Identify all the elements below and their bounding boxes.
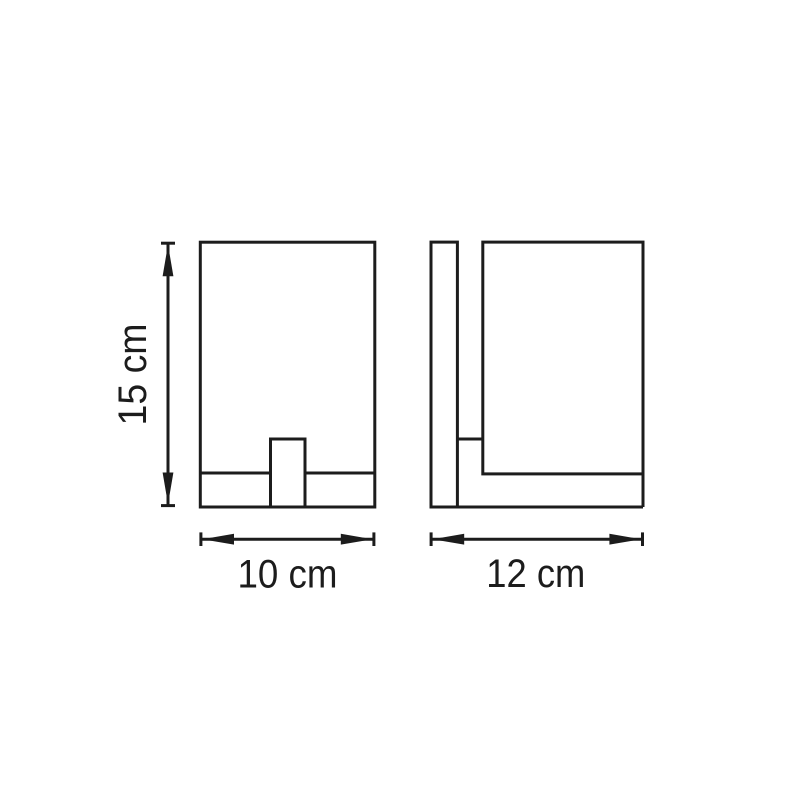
svg-text:10 cm: 10 cm [238,553,338,597]
svg-text:12 cm: 12 cm [486,552,585,596]
svg-text:15 cm: 15 cm [111,324,155,426]
